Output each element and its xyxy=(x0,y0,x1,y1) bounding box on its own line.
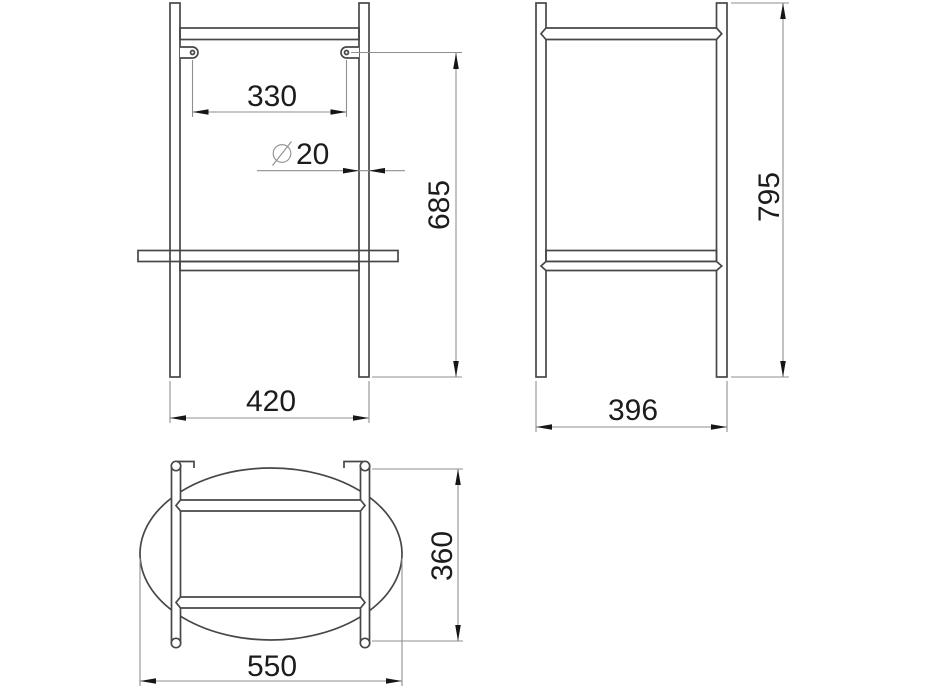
dim-label-396: 396 xyxy=(608,394,658,427)
dimension-685: 685 xyxy=(351,53,462,378)
leg-top-back-left xyxy=(171,461,180,470)
dim-label-550: 550 xyxy=(247,650,297,683)
dimension-795: 795 xyxy=(731,3,789,377)
dim-label-795: 795 xyxy=(753,172,786,222)
dim-label-20: 20 xyxy=(296,138,329,171)
dimension-420: 420 xyxy=(170,381,369,423)
top-rail xyxy=(541,28,722,40)
diameter-symbol xyxy=(273,142,292,166)
cross-rail-front xyxy=(176,500,365,511)
dimension-360: 360 xyxy=(372,469,463,641)
arrowhead-left xyxy=(343,168,359,174)
arrowhead-top xyxy=(453,53,459,69)
arrowhead-left xyxy=(193,109,209,115)
leg-left xyxy=(170,3,180,377)
dimension-396: 396 xyxy=(536,381,727,432)
dim-label-685: 685 xyxy=(423,180,456,230)
arrowhead-bottom xyxy=(453,361,459,377)
arrowhead-left xyxy=(536,424,552,430)
arrowhead-right xyxy=(711,424,727,430)
dim-label-420: 420 xyxy=(246,385,296,418)
lower-rail xyxy=(180,262,359,271)
leg-top-front-right xyxy=(360,638,369,647)
arrowhead-right xyxy=(331,109,347,115)
arrowhead-bottom xyxy=(780,361,786,377)
arrowhead-right xyxy=(369,168,385,174)
dimension-diameter-20: 20 xyxy=(257,138,405,174)
side-view: 795 396 xyxy=(536,3,789,432)
side-rail-right xyxy=(361,466,370,643)
arrowhead-left xyxy=(170,415,186,421)
shelf-edge xyxy=(546,251,717,262)
drawing-canvas: 330 20 685 420 xyxy=(0,0,928,686)
leg-front xyxy=(536,3,546,377)
top-view: 550 360 xyxy=(140,461,463,686)
leg-right xyxy=(359,3,369,377)
leg-top-front-left xyxy=(171,638,180,647)
technical-drawing: 330 20 685 420 xyxy=(0,0,928,686)
cross-rail-back xyxy=(176,597,365,608)
dim-label-330: 330 xyxy=(247,80,297,113)
arrowhead-bottom xyxy=(455,625,461,641)
lower-rail xyxy=(541,262,722,271)
arrowhead-right xyxy=(353,415,369,421)
arrowhead-left xyxy=(140,678,156,684)
arrowhead-top xyxy=(780,3,786,19)
top-rail xyxy=(180,28,359,40)
front-view: 330 20 685 420 xyxy=(138,3,462,423)
arrowhead-right xyxy=(386,678,402,684)
leg-back xyxy=(717,3,728,377)
dim-label-360: 360 xyxy=(426,531,459,581)
side-rail-left xyxy=(172,466,181,643)
arrowhead-top xyxy=(455,469,461,485)
leg-top-back-right xyxy=(360,461,369,470)
dimension-330: 330 xyxy=(193,60,347,117)
